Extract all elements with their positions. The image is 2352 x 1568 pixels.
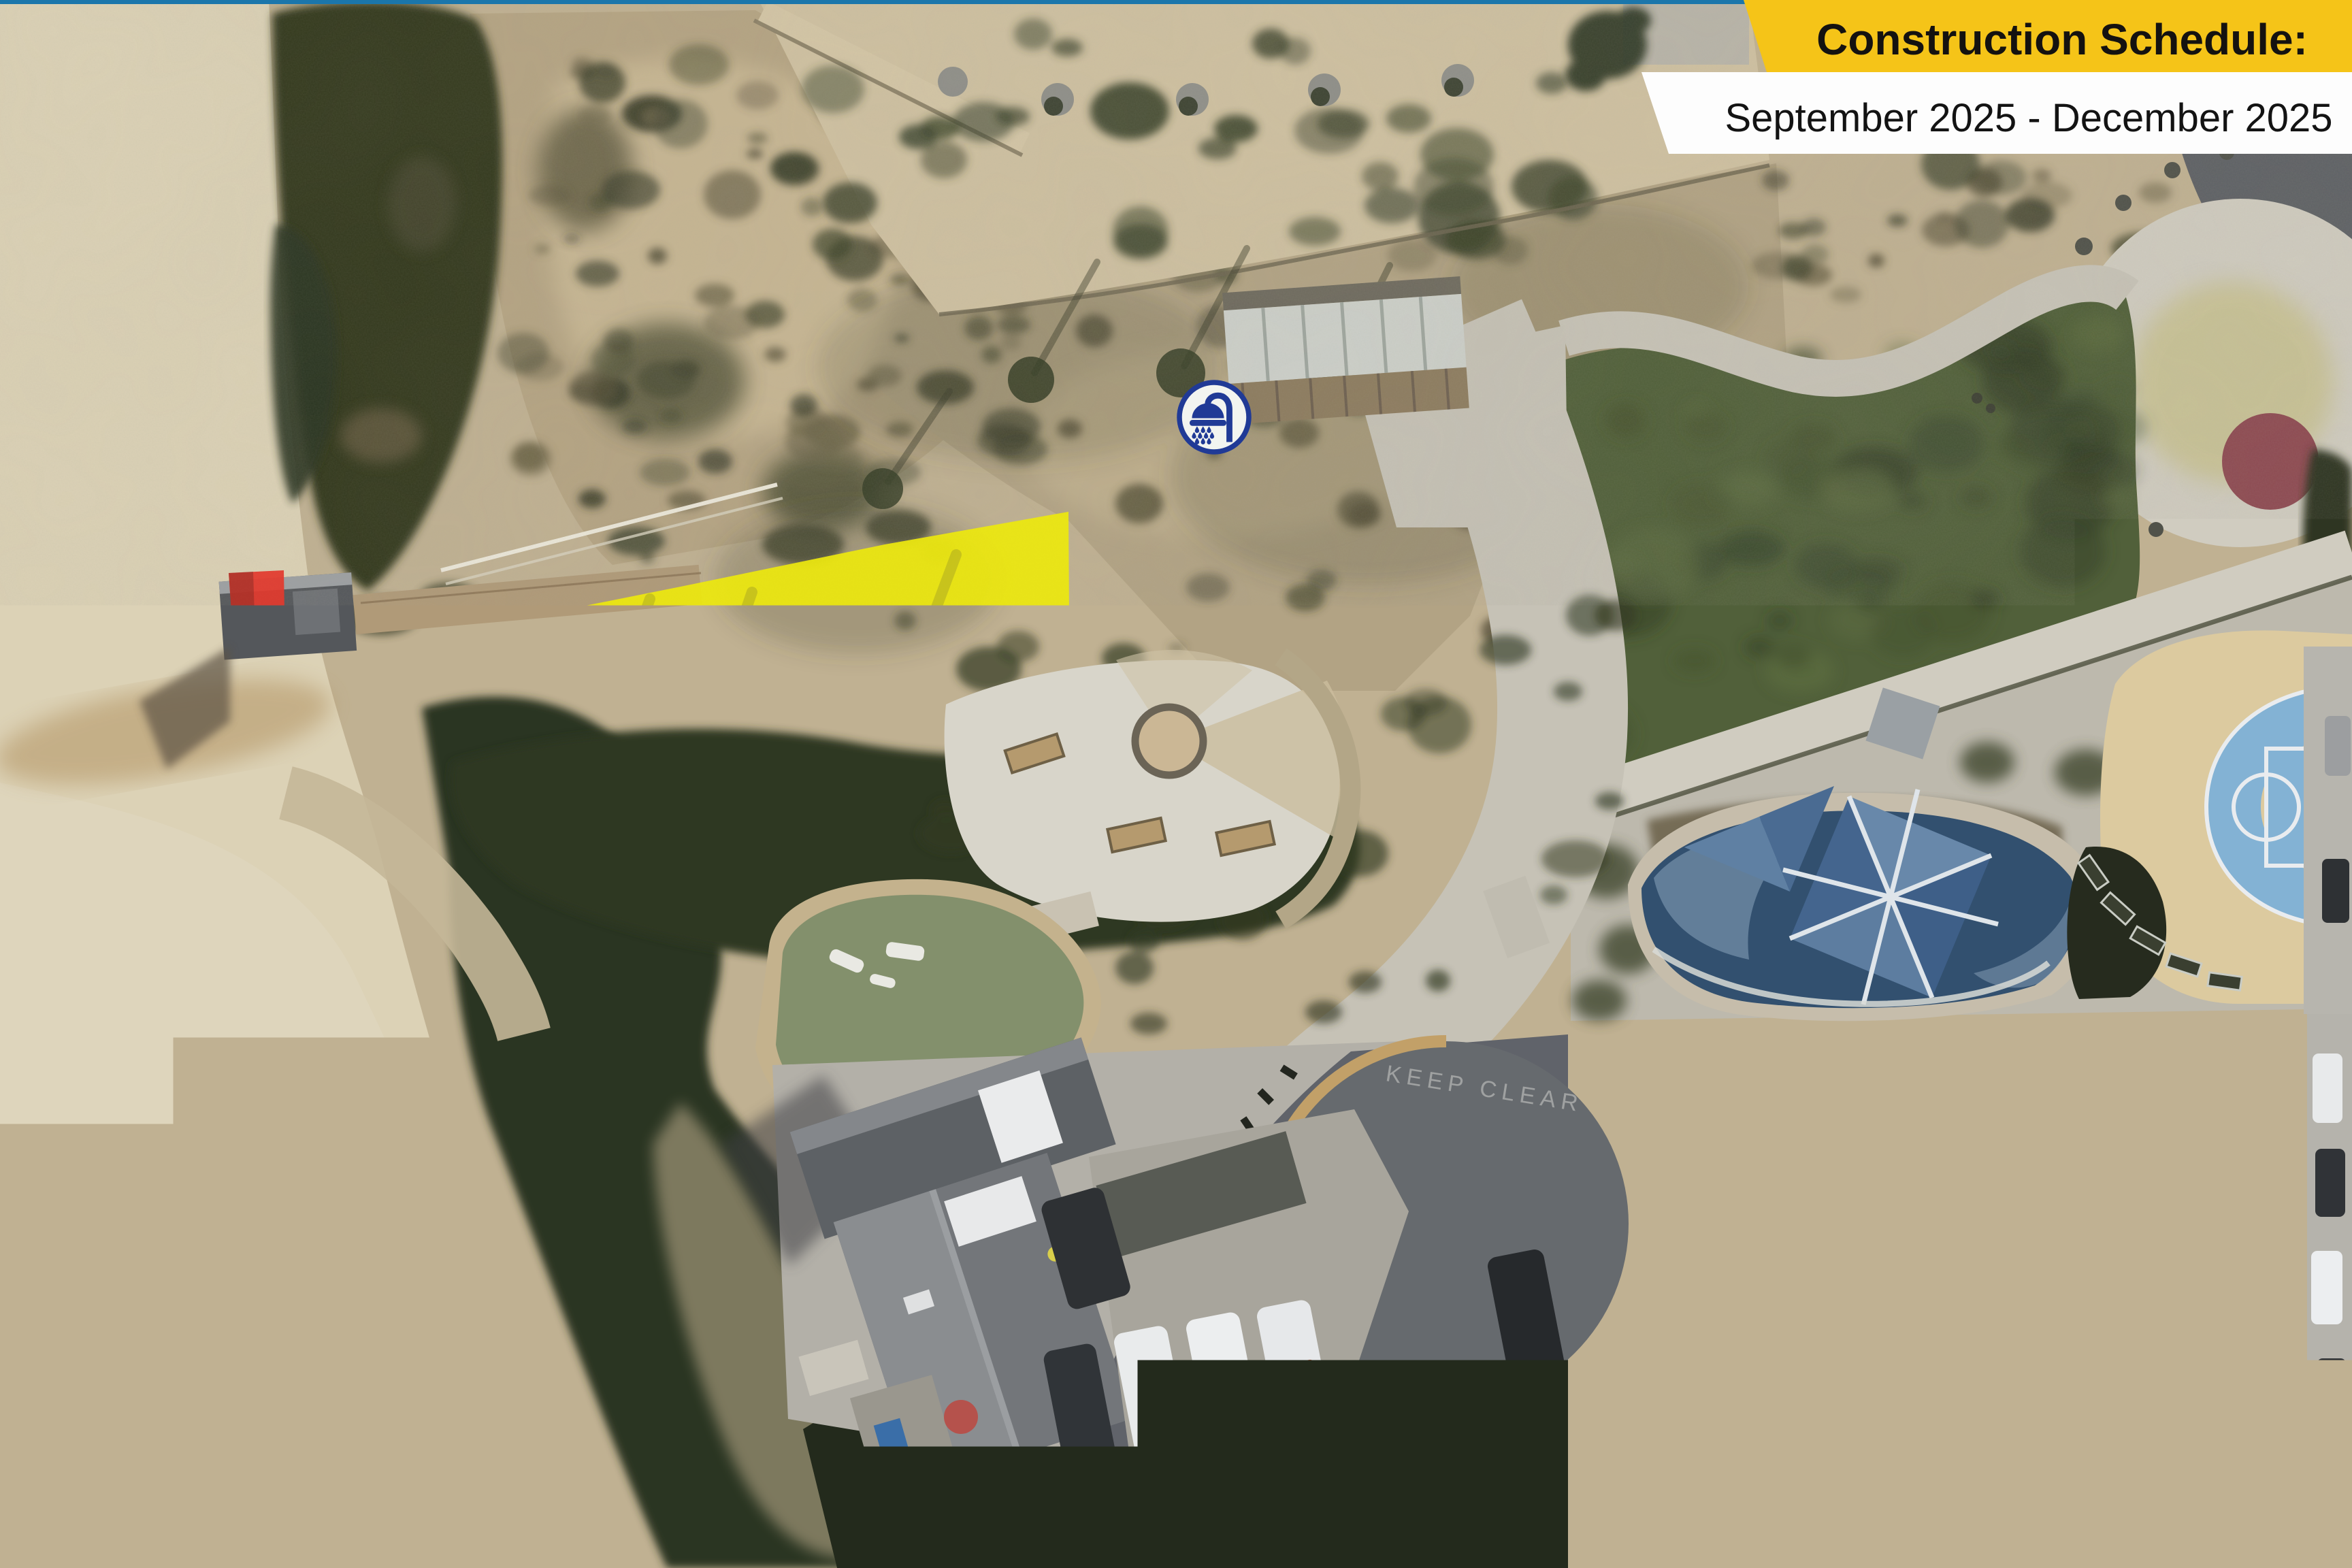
svg-text:Upgraded storm drain dissipate: Upgraded storm drain dissipater grate xyxy=(1715,1390,2240,1426)
svg-text:New beach access ramp with: New beach access ramp with xyxy=(1715,1128,2122,1164)
svg-text:Construction Schedule:: Construction Schedule: xyxy=(1816,15,2308,64)
svg-text:-: - xyxy=(1685,1390,1695,1426)
svg-text:Additional shower heads instal: Additional shower heads installed for xyxy=(1715,1287,2225,1322)
svg-text:improved walkway & handrailing: improved walkway & handrailing xyxy=(1715,1167,2162,1203)
svg-text:-: - xyxy=(1685,1128,1695,1164)
svg-text:-: - xyxy=(1685,1218,1695,1253)
svg-text:New shower area at the bottom: New shower area at the bottom ramp xyxy=(1715,1218,2230,1253)
svg-text:-: - xyxy=(1685,1287,1695,1322)
svg-text:Project Improvements:: Project Improvements: xyxy=(1625,1041,2237,1104)
svg-text:post-beach cleanups: post-beach cleanups xyxy=(1715,1326,2004,1361)
svg-text:September 2025 - December 2025: September 2025 - December 2025 xyxy=(1725,96,2332,140)
